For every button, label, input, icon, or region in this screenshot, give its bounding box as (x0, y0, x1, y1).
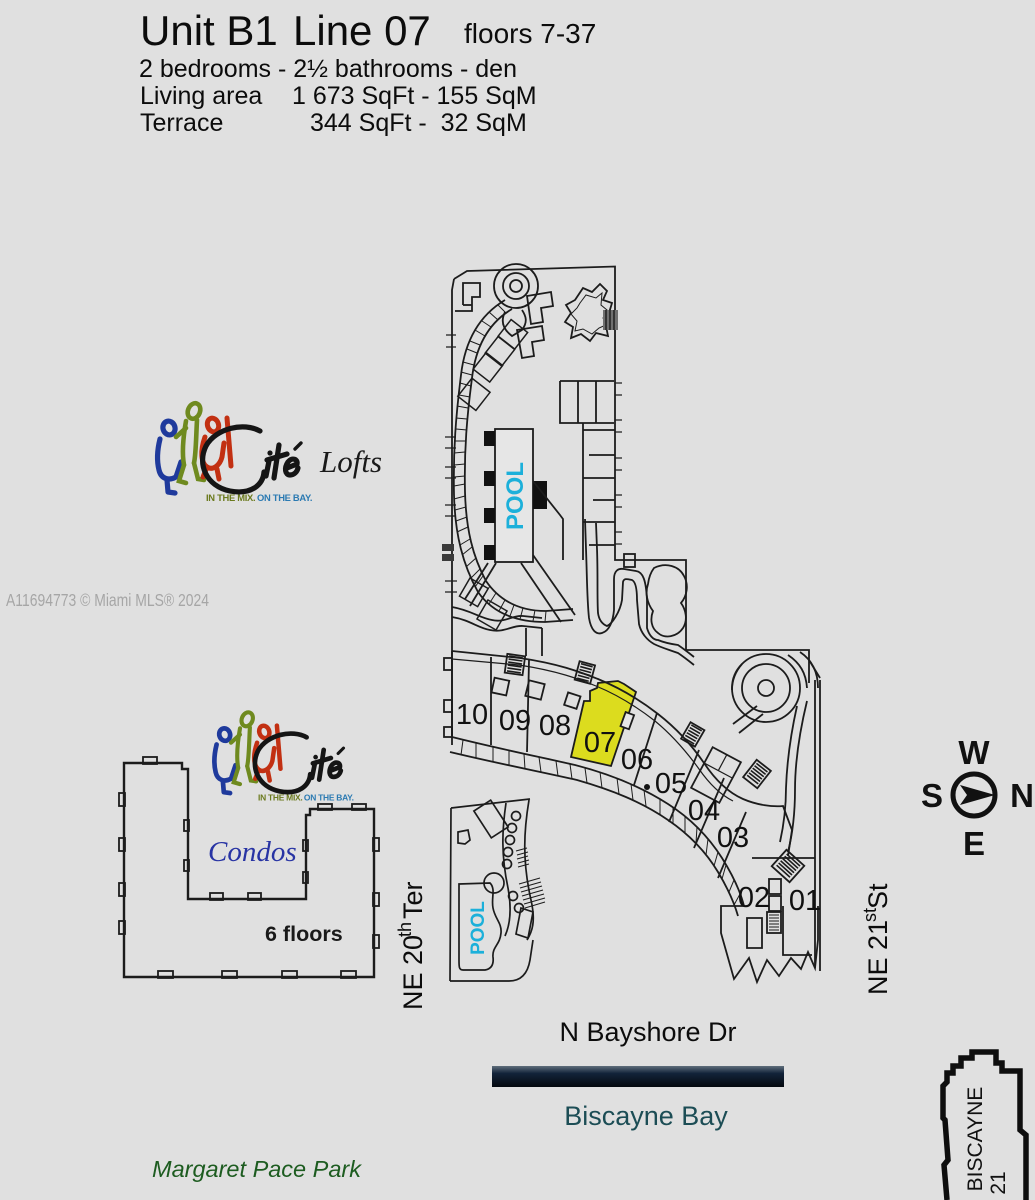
svg-text:Unit B1: Unit B1 (140, 7, 278, 54)
svg-text:02: 02 (738, 882, 770, 914)
svg-text:NE 21: NE 21 (863, 920, 893, 995)
svg-text:08: 08 (539, 710, 571, 742)
svg-text:POOL: POOL (502, 462, 529, 530)
svg-text:6 floors: 6 floors (265, 922, 343, 946)
svg-text:POOL: POOL (468, 901, 489, 955)
svg-text:A11694773 © Miami MLS® 2024: A11694773 © Miami MLS® 2024 (6, 590, 209, 610)
svg-text:07: 07 (584, 727, 616, 759)
svg-text:Living area: Living area (140, 82, 262, 110)
svg-text:05: 05 (655, 768, 687, 800)
svg-text:Ter: Ter (398, 881, 428, 919)
svg-text:N: N (1010, 777, 1034, 814)
svg-text:1 673 SqFt - 155 SqM: 1 673 SqFt - 155 SqM (292, 82, 537, 110)
svg-text:st: st (860, 908, 880, 922)
svg-text:St: St (863, 883, 893, 909)
svg-text:W: W (958, 734, 990, 771)
svg-text:N Bayshore Dr: N Bayshore Dr (559, 1017, 736, 1047)
svg-text:BISCAYNE: BISCAYNE (964, 1087, 987, 1192)
svg-text:01: 01 (789, 885, 821, 917)
svg-text:344 SqFt - 32 SqM: 344 SqFt - 32 SqM (310, 109, 527, 137)
svg-text:Margaret Pace Park: Margaret Pace Park (152, 1156, 362, 1182)
svg-text:09: 09 (499, 705, 531, 737)
svg-text:2 bedrooms - 2½ bathrooms - de: 2 bedrooms - 2½ bathrooms - den (139, 55, 517, 83)
svg-text:06: 06 (621, 744, 653, 776)
svg-text:Lofts: Lofts (319, 444, 382, 479)
svg-text:Condos: Condos (208, 836, 297, 868)
svg-text:floors 7-37: floors 7-37 (464, 18, 596, 49)
svg-text:Terrace: Terrace (140, 109, 223, 137)
svg-text:04: 04 (688, 795, 720, 827)
svg-text:E: E (963, 825, 985, 862)
svg-text:Line 07: Line 07 (293, 7, 431, 54)
svg-text:S: S (921, 777, 943, 814)
svg-text:21: 21 (987, 1171, 1010, 1194)
svg-text:10: 10 (456, 699, 488, 731)
svg-text:th: th (395, 922, 415, 937)
svg-text:NE 20: NE 20 (398, 935, 428, 1010)
svg-text:Biscayne Bay: Biscayne Bay (564, 1101, 728, 1131)
svg-text:03: 03 (717, 822, 749, 854)
